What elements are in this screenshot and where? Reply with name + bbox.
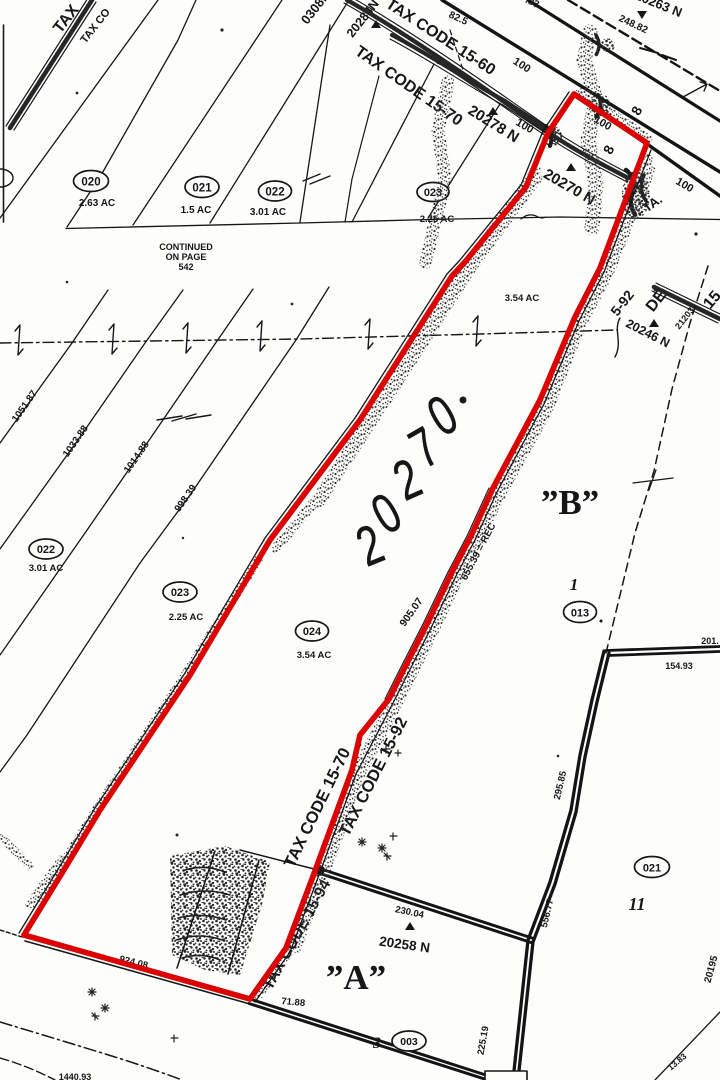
svg-text:3.54 AC: 3.54 AC <box>505 293 540 304</box>
svg-text:ON PAGE: ON PAGE <box>166 252 207 262</box>
svg-text:024: 024 <box>303 626 322 638</box>
svg-text:71.88: 71.88 <box>281 996 306 1009</box>
svg-text:003: 003 <box>400 1036 418 1048</box>
svg-text:”A”: ”A” <box>326 958 386 997</box>
svg-text:CONTINUED: CONTINUED <box>159 242 213 252</box>
svg-text:023: 023 <box>171 587 189 599</box>
svg-text:022: 022 <box>37 544 55 556</box>
svg-text:1.5 AC: 1.5 AC <box>181 205 212 216</box>
svg-text:201.: 201. <box>701 636 719 646</box>
svg-text:022: 022 <box>265 187 284 199</box>
svg-text:3.01 AC: 3.01 AC <box>250 207 286 218</box>
svg-text:1440.93: 1440.93 <box>59 1072 92 1080</box>
svg-text:3.01 AC: 3.01 AC <box>29 563 64 574</box>
svg-text:021: 021 <box>643 863 661 875</box>
svg-text:542: 542 <box>178 262 193 272</box>
svg-text:2.25 AC: 2.25 AC <box>169 612 204 623</box>
svg-text:”B”: ”B” <box>541 483 599 522</box>
svg-text:3.54 AC: 3.54 AC <box>297 650 332 661</box>
svg-text:11: 11 <box>628 894 645 914</box>
svg-text:020: 020 <box>81 177 100 189</box>
svg-text:154.93: 154.93 <box>665 661 693 671</box>
svg-text:013: 013 <box>571 608 589 620</box>
svg-text:3: 3 <box>372 1035 381 1052</box>
svg-text:1: 1 <box>570 575 579 594</box>
svg-text:021: 021 <box>192 183 212 195</box>
svg-text:2.63 AC: 2.63 AC <box>79 198 115 209</box>
